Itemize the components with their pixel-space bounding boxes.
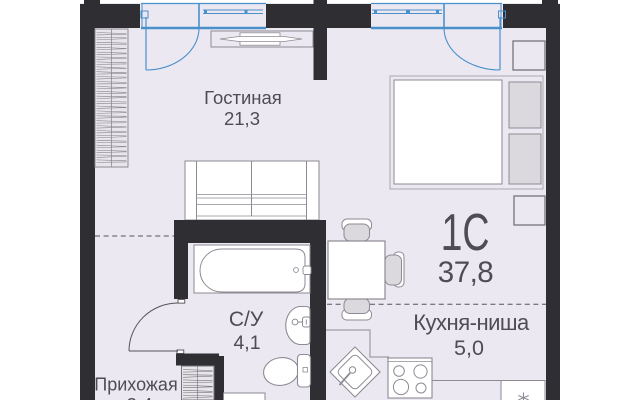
svg-text:Кухня-ниша: Кухня-ниша bbox=[413, 310, 530, 335]
svg-text:4,1: 4,1 bbox=[233, 332, 260, 354]
svg-text:21,3: 21,3 bbox=[224, 108, 260, 129]
svg-text:С/У: С/У bbox=[229, 308, 264, 331]
svg-text:5,0: 5,0 bbox=[454, 336, 484, 360]
svg-text:Гостиная: Гостиная bbox=[204, 87, 282, 108]
svg-text:1С: 1С bbox=[442, 204, 490, 262]
svg-text:3,4: 3,4 bbox=[127, 394, 153, 400]
svg-text:37,8: 37,8 bbox=[438, 256, 494, 289]
svg-text:Прихожая: Прихожая bbox=[94, 375, 177, 395]
